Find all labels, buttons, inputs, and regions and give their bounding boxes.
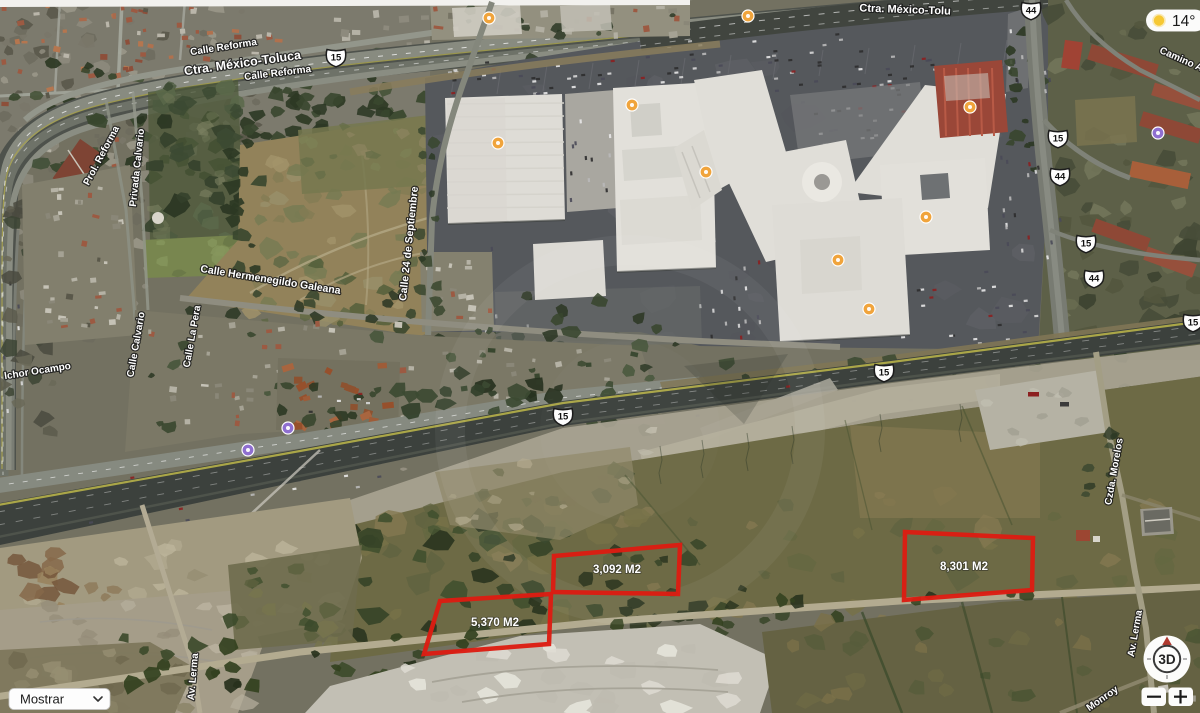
svg-text:44: 44 xyxy=(1089,274,1100,285)
svg-text:44: 44 xyxy=(1026,6,1037,17)
svg-text:14°: 14° xyxy=(1172,13,1195,30)
svg-text:15: 15 xyxy=(879,368,890,379)
svg-text:3,092 M2: 3,092 M2 xyxy=(593,564,641,576)
svg-text:15: 15 xyxy=(331,53,342,64)
svg-text:8,301 M2: 8,301 M2 xyxy=(940,561,988,573)
svg-text:15: 15 xyxy=(1081,239,1092,250)
svg-text:44: 44 xyxy=(1055,172,1066,183)
svg-text:15: 15 xyxy=(1053,134,1064,145)
svg-text:Mostrar: Mostrar xyxy=(20,692,65,707)
svg-text:15: 15 xyxy=(1188,318,1199,329)
svg-text:15: 15 xyxy=(558,412,569,423)
svg-text:3D: 3D xyxy=(1158,652,1176,667)
svg-text:5,370 M2: 5,370 M2 xyxy=(471,617,519,629)
